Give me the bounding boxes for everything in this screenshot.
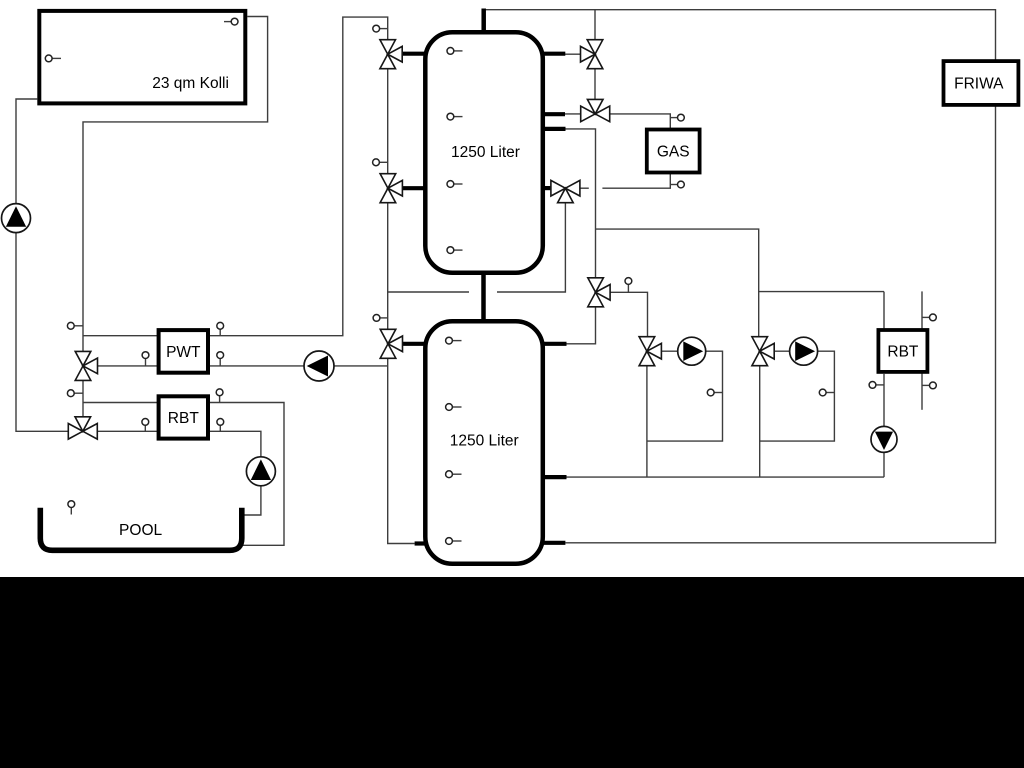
- svg-text:1250 Liter: 1250 Liter: [450, 433, 519, 450]
- svg-text:PWT: PWT: [166, 344, 201, 361]
- svg-text:GAS: GAS: [657, 144, 690, 161]
- svg-text:POOL: POOL: [119, 522, 162, 539]
- svg-text:RBT: RBT: [168, 410, 200, 427]
- svg-text:FRIWA: FRIWA: [954, 75, 1004, 92]
- svg-text:RBT: RBT: [887, 344, 919, 361]
- svg-text:23 qm Kolli: 23 qm Kolli: [152, 75, 229, 92]
- svg-text:1250 Liter: 1250 Liter: [451, 144, 520, 161]
